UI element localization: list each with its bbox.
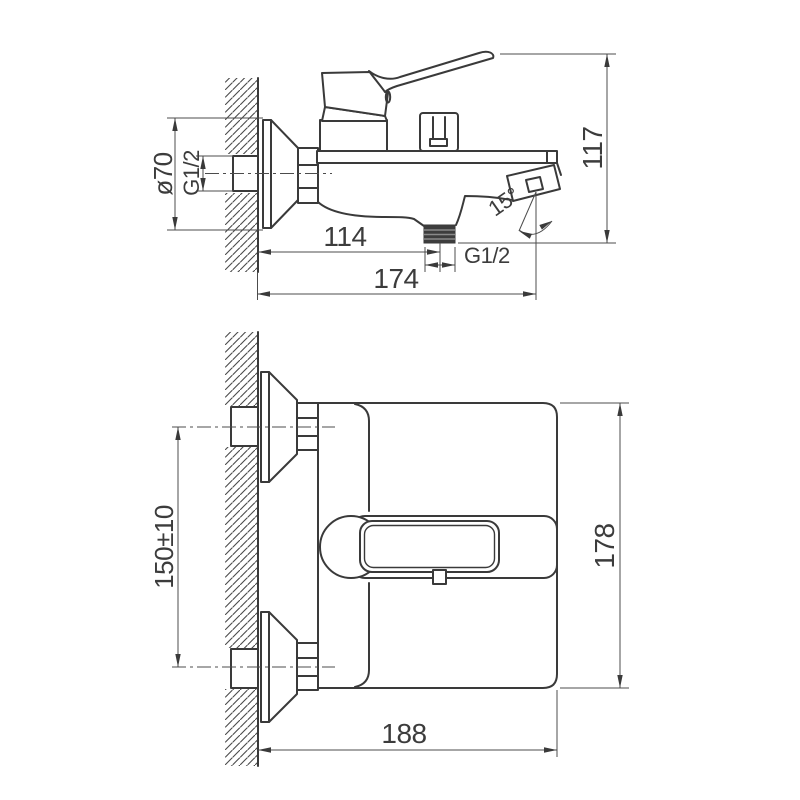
wall-section [225,78,258,272]
wall-hatch [225,332,258,406]
dim-label-overall-projection: 174 [373,263,418,294]
dim-label-overall-height: 117 [577,126,608,169]
dim-label-flange-diameter: ø70 [148,152,178,195]
wall-hatch [225,447,258,648]
body-top-plate [317,151,557,163]
plan-view: 150±10 178 188 [149,332,629,766]
diverter-knob [420,113,458,151]
dim-label-overall-depth: 188 [381,718,426,749]
shower-outlet [424,225,455,243]
wall-section-plan [225,332,258,766]
dim-wall-thread: G1/2 [179,150,233,196]
pipe-nipple [231,649,258,688]
faucet-body-side [317,52,561,243]
body-underside-left [318,164,424,226]
side-view: ø70 G1/2 117 114 [148,52,616,300]
dim-label-wall-thread: G1/2 [179,150,204,196]
handle-base-block [320,120,387,151]
dim-label-wall-to-outlet: 114 [323,221,366,252]
faucet-installation-drawing: ø70 G1/2 117 114 [0,0,800,800]
dim-label-outlet-thread: G1/2 [464,243,510,268]
nut [298,148,318,203]
dim-label-connection-spacing: 150±10 [149,505,179,589]
dim-overall-depth: 188 [258,690,557,757]
lever-plan [360,521,499,572]
diverter-collar [430,139,447,146]
wall-hatch [225,689,258,766]
dim-outlet-thread: G1/2 [425,243,510,272]
faucet-body-plan [318,403,557,688]
wall-hatch [225,193,258,272]
dim-body-length: 178 [560,403,629,688]
dim-overall-height: 117 [458,54,616,243]
spout-tip-step [557,163,561,175]
wall-hatch [225,78,258,154]
lever-handle [369,52,493,92]
technical-drawing-page: ø70 G1/2 117 114 [0,0,800,800]
dim-connection-spacing: 150±10 [149,427,181,667]
diverter-plan [433,570,446,584]
dim-label-body-length: 178 [589,523,620,568]
